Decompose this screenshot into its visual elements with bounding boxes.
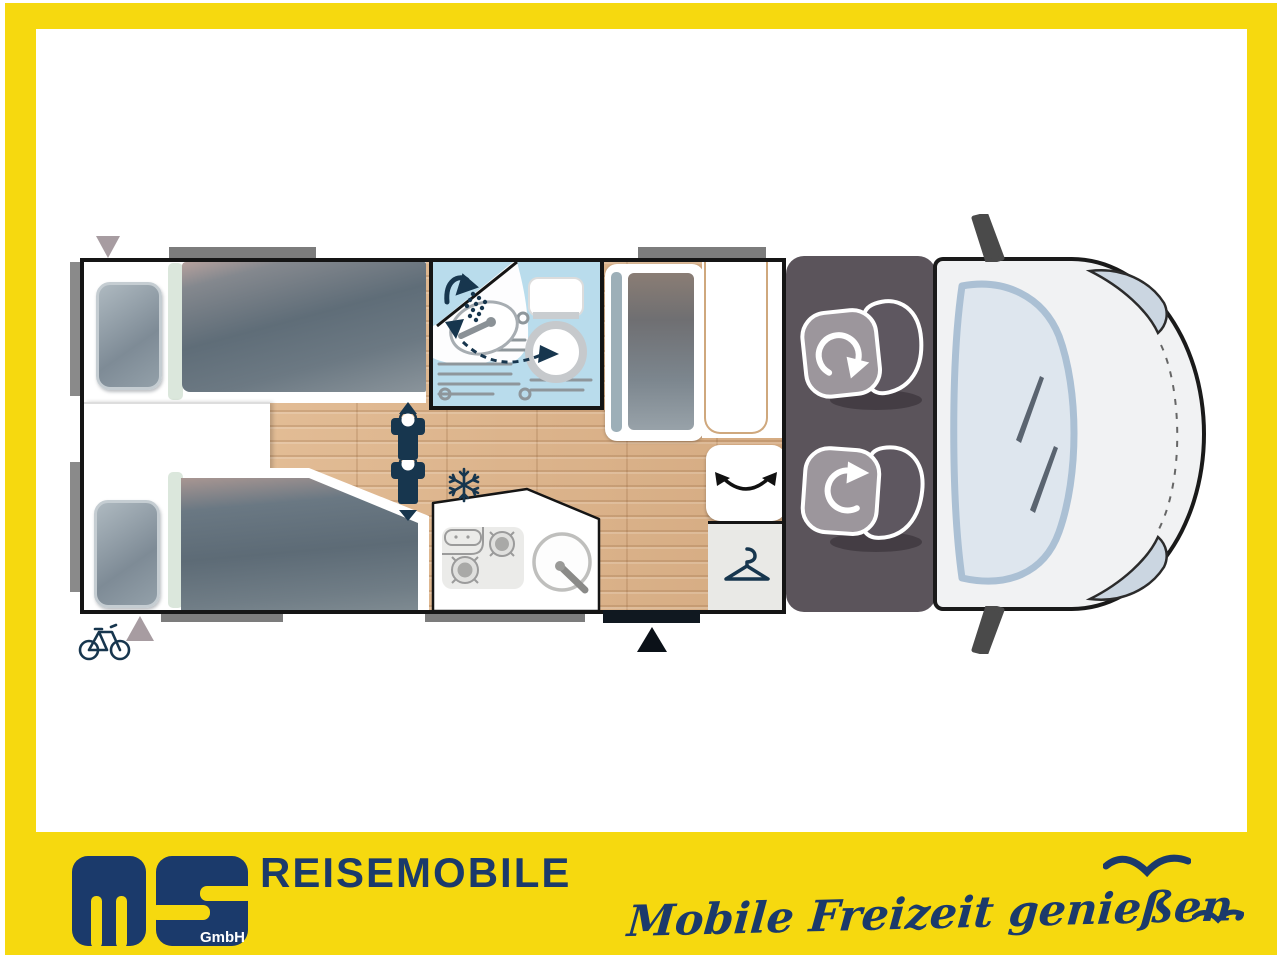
hanger-icon bbox=[722, 542, 772, 586]
windshield bbox=[946, 278, 1096, 586]
advert-image: GmbH REISEMOBILE Mobile Freizeit genieße… bbox=[0, 0, 1280, 959]
dinette-table bbox=[704, 262, 768, 434]
swivel-driver-seat bbox=[794, 296, 930, 414]
bench-backrest bbox=[611, 272, 622, 432]
bed-top-duvet bbox=[182, 262, 426, 392]
living-area bbox=[80, 258, 786, 614]
banner-title: REISEMOBILE bbox=[260, 852, 571, 894]
mirror-top bbox=[966, 214, 1016, 262]
bench-seat bbox=[605, 264, 704, 441]
dinette-area bbox=[702, 262, 786, 438]
mirror-bottom bbox=[966, 606, 1016, 654]
bathroom bbox=[429, 262, 604, 410]
round-sink bbox=[534, 534, 590, 590]
swivel-toilet bbox=[529, 325, 583, 379]
bed-top bbox=[84, 262, 426, 403]
entry-door-triangle bbox=[637, 627, 667, 652]
berth-person-icon-up bbox=[391, 402, 425, 464]
entry-door bbox=[603, 610, 700, 623]
bed-top-headboard bbox=[168, 263, 183, 400]
toilet-tank bbox=[529, 278, 583, 316]
kitchen-block bbox=[431, 486, 601, 612]
vehicle-front bbox=[933, 257, 1206, 611]
bed-top-pillow bbox=[96, 282, 162, 390]
swivel-stool bbox=[706, 445, 786, 521]
wardrobe bbox=[708, 521, 786, 610]
two-burner-hob bbox=[442, 527, 524, 589]
swivel-arrow-icon bbox=[714, 471, 778, 501]
berth-person-icon-down bbox=[391, 460, 425, 522]
bed-bottom-pillow bbox=[94, 500, 160, 608]
swivel-passenger-seat bbox=[794, 436, 930, 554]
bench-cushion bbox=[625, 270, 697, 433]
seagull-icon-small bbox=[1192, 905, 1244, 933]
headlight-top bbox=[1084, 263, 1176, 347]
burner-2 bbox=[490, 532, 514, 556]
seagull-icon-large bbox=[1103, 848, 1191, 888]
hood-dash-line bbox=[1149, 343, 1189, 531]
bed-bottom-duvet bbox=[181, 478, 418, 610]
bike-storage-icon bbox=[78, 618, 132, 662]
between-beds-step bbox=[84, 402, 270, 474]
rear-marker-triangle-top bbox=[96, 236, 120, 258]
snowflake-fridge-icon bbox=[446, 466, 482, 504]
logo-sub-label: GmbH bbox=[200, 929, 245, 946]
bed-bottom-headboard bbox=[168, 472, 183, 608]
headlight-bottom bbox=[1084, 523, 1176, 607]
burner-1 bbox=[452, 557, 478, 583]
ms-gmbh-logo: GmbH bbox=[70, 848, 252, 952]
